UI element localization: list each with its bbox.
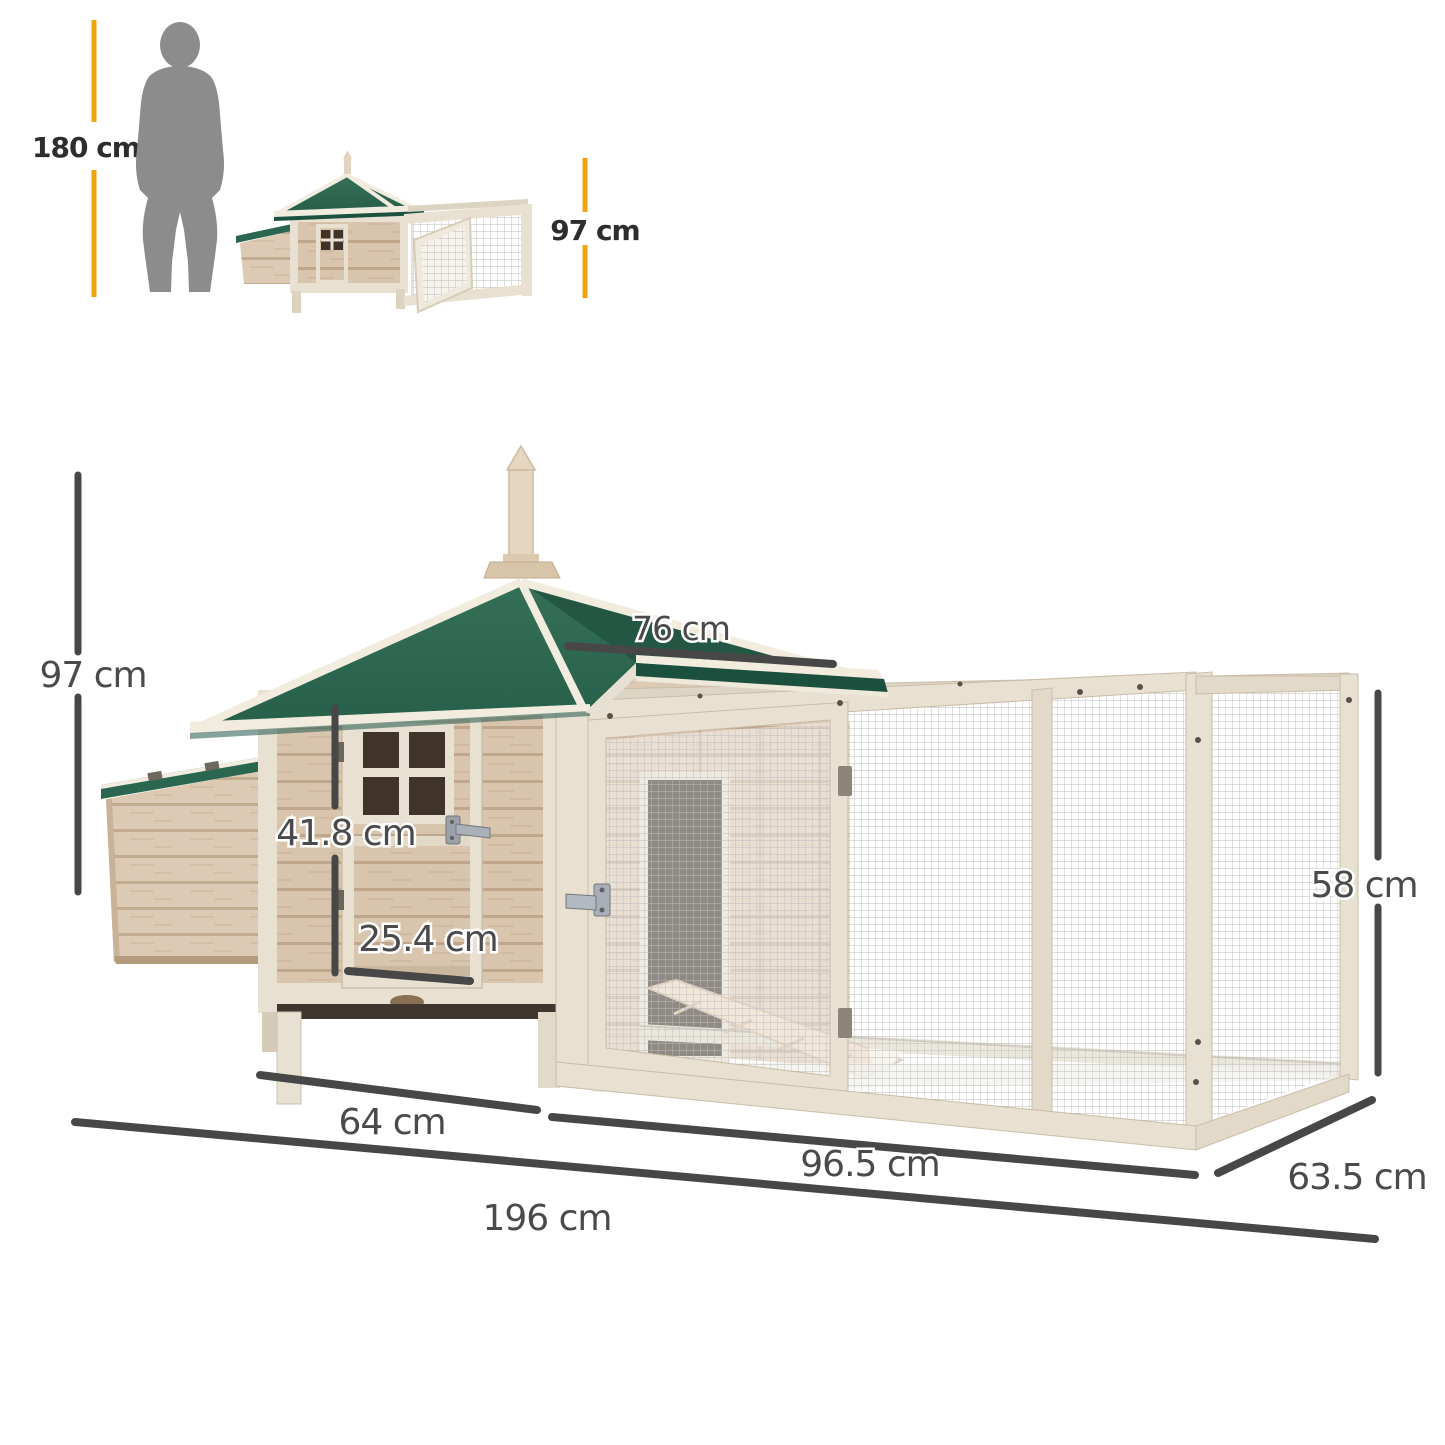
thumb-house-wall xyxy=(290,215,408,287)
run-door-mesh xyxy=(606,722,830,1076)
dimension-label: 76 cm xyxy=(632,609,730,648)
roof-finial xyxy=(484,446,560,578)
nest-box xyxy=(101,757,262,964)
run-mesh-panels xyxy=(606,678,1342,1126)
dimension-label: 96.5 cm xyxy=(800,1144,939,1185)
coop-height-label: 97 cm xyxy=(550,214,640,247)
coop-thumbnail xyxy=(236,150,532,313)
nest-box-front xyxy=(106,771,262,962)
product-dimensions-illustration: 180 cm xyxy=(0,0,1445,1445)
chicken-coop-illustration xyxy=(101,446,1358,1150)
house-corner-post-left xyxy=(258,690,277,1012)
human-silhouette xyxy=(136,22,224,292)
thumb-finial xyxy=(344,157,351,174)
dimension-label: 58 cm xyxy=(1310,865,1417,906)
dimension-label: 97 cm xyxy=(39,655,146,696)
dimension-label: 196 cm xyxy=(482,1198,611,1239)
thumb-leg-left xyxy=(292,291,301,313)
thumb-run-post xyxy=(522,204,532,296)
product-dimension-diagram: 180 cm xyxy=(0,0,1445,1445)
run-front-mesh xyxy=(848,678,1188,1126)
house-leg-front-left xyxy=(277,1012,301,1104)
thumb-apron xyxy=(290,283,408,293)
dimension-label: 41.8 cm xyxy=(276,813,415,854)
dimension-label: 25.4 cm xyxy=(358,919,497,960)
run-left-stile xyxy=(556,700,588,1068)
door-window xyxy=(354,723,454,824)
dimension-house-depth: 64 cm xyxy=(260,1075,537,1143)
run-door-hinge xyxy=(838,1008,852,1038)
under-house-shadow xyxy=(277,1004,560,1019)
run-center-stud xyxy=(1032,688,1052,1116)
thumb-leg-right xyxy=(396,289,405,309)
run-door-hinge xyxy=(838,766,852,796)
dimension-label: 63.5 cm xyxy=(1287,1157,1426,1198)
person-height-label: 180 cm xyxy=(32,131,140,164)
dimension-label: 64 cm xyxy=(338,1102,445,1143)
scale-comparison-row: 180 cm xyxy=(32,20,640,313)
